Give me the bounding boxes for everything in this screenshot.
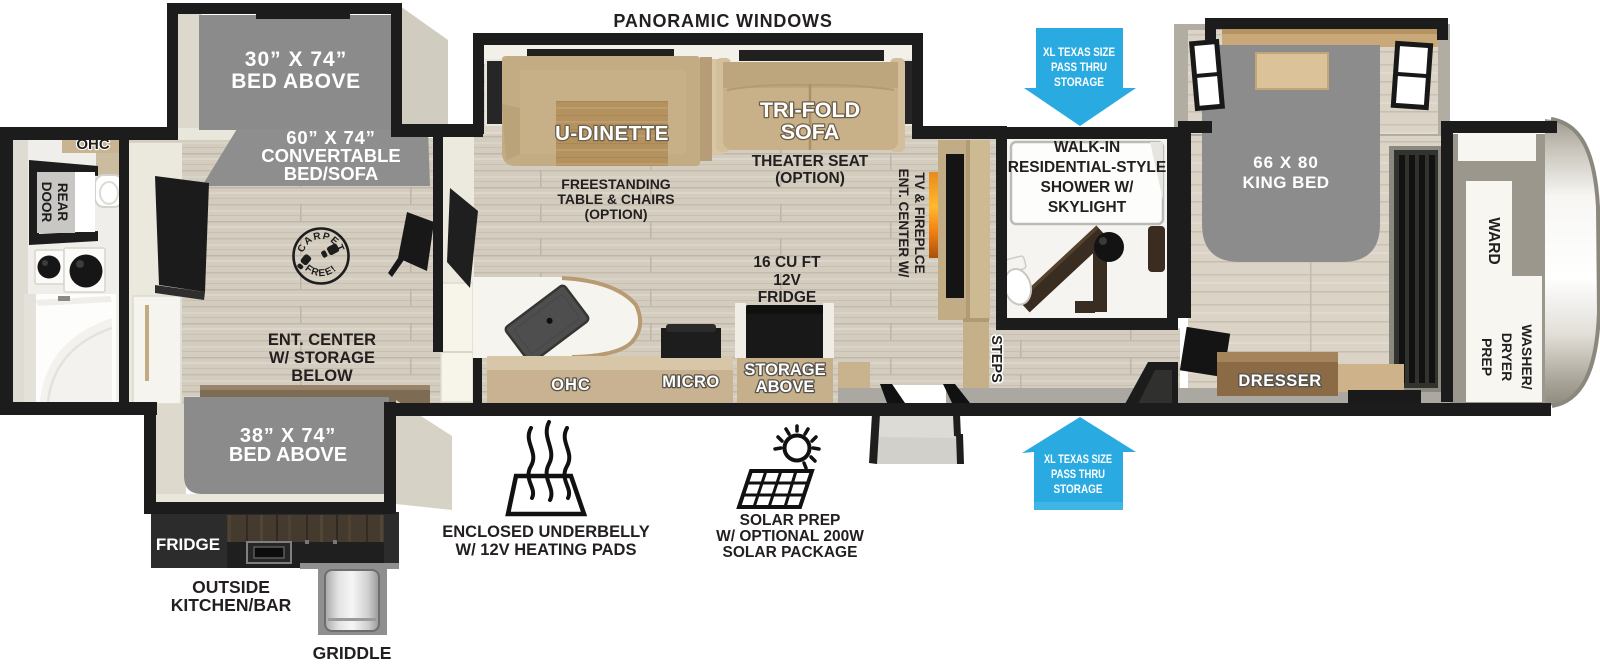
svg-text:W/ OPTIONAL 200W: W/ OPTIONAL 200W bbox=[716, 528, 864, 545]
svg-text:SHOWER W/: SHOWER W/ bbox=[1041, 179, 1135, 196]
svg-text:U-DINETTE: U-DINETTE bbox=[555, 122, 669, 145]
svg-text:16 CU FT: 16 CU FT bbox=[753, 254, 821, 271]
svg-text:REAR: REAR bbox=[55, 183, 70, 222]
svg-text:WASHER/: WASHER/ bbox=[1519, 324, 1535, 389]
svg-text:PASS THRU: PASS THRU bbox=[1051, 467, 1105, 481]
svg-text:XL TEXAS SIZE: XL TEXAS SIZE bbox=[1044, 452, 1112, 466]
svg-text:TABLE & CHAIRS: TABLE & CHAIRS bbox=[557, 191, 674, 207]
svg-text:ENT. CENTER: ENT. CENTER bbox=[268, 331, 376, 349]
svg-text:STEPS: STEPS bbox=[988, 335, 1004, 383]
svg-text:ENT. CENTER W/: ENT. CENTER W/ bbox=[896, 169, 911, 278]
svg-text:TRI-FOLD: TRI-FOLD bbox=[760, 98, 860, 122]
svg-text:DOOR: DOOR bbox=[39, 182, 54, 223]
svg-text:RESIDENTIAL-STYLE: RESIDENTIAL-STYLE bbox=[1008, 159, 1166, 176]
svg-text:W/ STORAGE: W/ STORAGE bbox=[269, 349, 375, 367]
svg-text:PASS THRU: PASS THRU bbox=[1051, 60, 1107, 74]
svg-text:WARD: WARD bbox=[1485, 217, 1502, 264]
svg-text:MICRO: MICRO bbox=[662, 373, 720, 391]
svg-text:BED/SOFA: BED/SOFA bbox=[284, 163, 379, 184]
svg-text:30” X 74”: 30” X 74” bbox=[245, 48, 347, 71]
svg-text:KITCHEN/BAR: KITCHEN/BAR bbox=[171, 595, 292, 615]
svg-text:THEATER SEAT: THEATER SEAT bbox=[752, 153, 869, 170]
svg-text:12V: 12V bbox=[773, 272, 801, 289]
svg-text:SKYLIGHT: SKYLIGHT bbox=[1048, 199, 1127, 216]
svg-text:SOFA: SOFA bbox=[781, 120, 840, 144]
svg-text:BELOW: BELOW bbox=[291, 367, 353, 385]
svg-text:BED ABOVE: BED ABOVE bbox=[229, 444, 347, 466]
svg-text:KING BED: KING BED bbox=[1242, 173, 1329, 192]
svg-text:ENCLOSED UNDERBELLY: ENCLOSED UNDERBELLY bbox=[442, 523, 650, 541]
svg-text:SOLAR PACKAGE: SOLAR PACKAGE bbox=[723, 544, 858, 561]
svg-text:XL TEXAS SIZE: XL TEXAS SIZE bbox=[1043, 45, 1115, 59]
svg-text:OHC: OHC bbox=[551, 376, 591, 394]
svg-text:BED ABOVE: BED ABOVE bbox=[231, 70, 360, 93]
svg-text:FREESTANDING: FREESTANDING bbox=[561, 176, 671, 192]
svg-text:PANORAMIC WINDOWS: PANORAMIC WINDOWS bbox=[613, 11, 832, 31]
svg-text:STORAGE: STORAGE bbox=[1054, 75, 1104, 89]
svg-text:OUTSIDE: OUTSIDE bbox=[192, 577, 270, 597]
svg-text:WALK-IN: WALK-IN bbox=[1054, 139, 1120, 156]
svg-text:DRYER: DRYER bbox=[1499, 333, 1515, 382]
svg-text:SOLAR PREP: SOLAR PREP bbox=[740, 512, 841, 529]
svg-text:(OPTION): (OPTION) bbox=[775, 170, 845, 187]
svg-text:ABOVE: ABOVE bbox=[756, 378, 815, 396]
svg-text:(OPTION): (OPTION) bbox=[585, 206, 648, 222]
svg-text:TV & FIREPLCE: TV & FIREPLCE bbox=[912, 172, 927, 273]
svg-text:FRIDGE: FRIDGE bbox=[758, 289, 817, 306]
svg-text:STORAGE: STORAGE bbox=[1054, 482, 1103, 496]
svg-text:FRIDGE: FRIDGE bbox=[156, 535, 220, 554]
svg-text:W/ 12V HEATING PADS: W/ 12V HEATING PADS bbox=[456, 541, 637, 559]
svg-text:STORAGE: STORAGE bbox=[744, 361, 825, 379]
svg-text:PREP: PREP bbox=[1479, 338, 1495, 376]
svg-text:DRESSER: DRESSER bbox=[1238, 372, 1321, 390]
svg-text:66 X 80: 66 X 80 bbox=[1253, 153, 1319, 172]
svg-text:GRIDDLE: GRIDDLE bbox=[313, 643, 392, 663]
